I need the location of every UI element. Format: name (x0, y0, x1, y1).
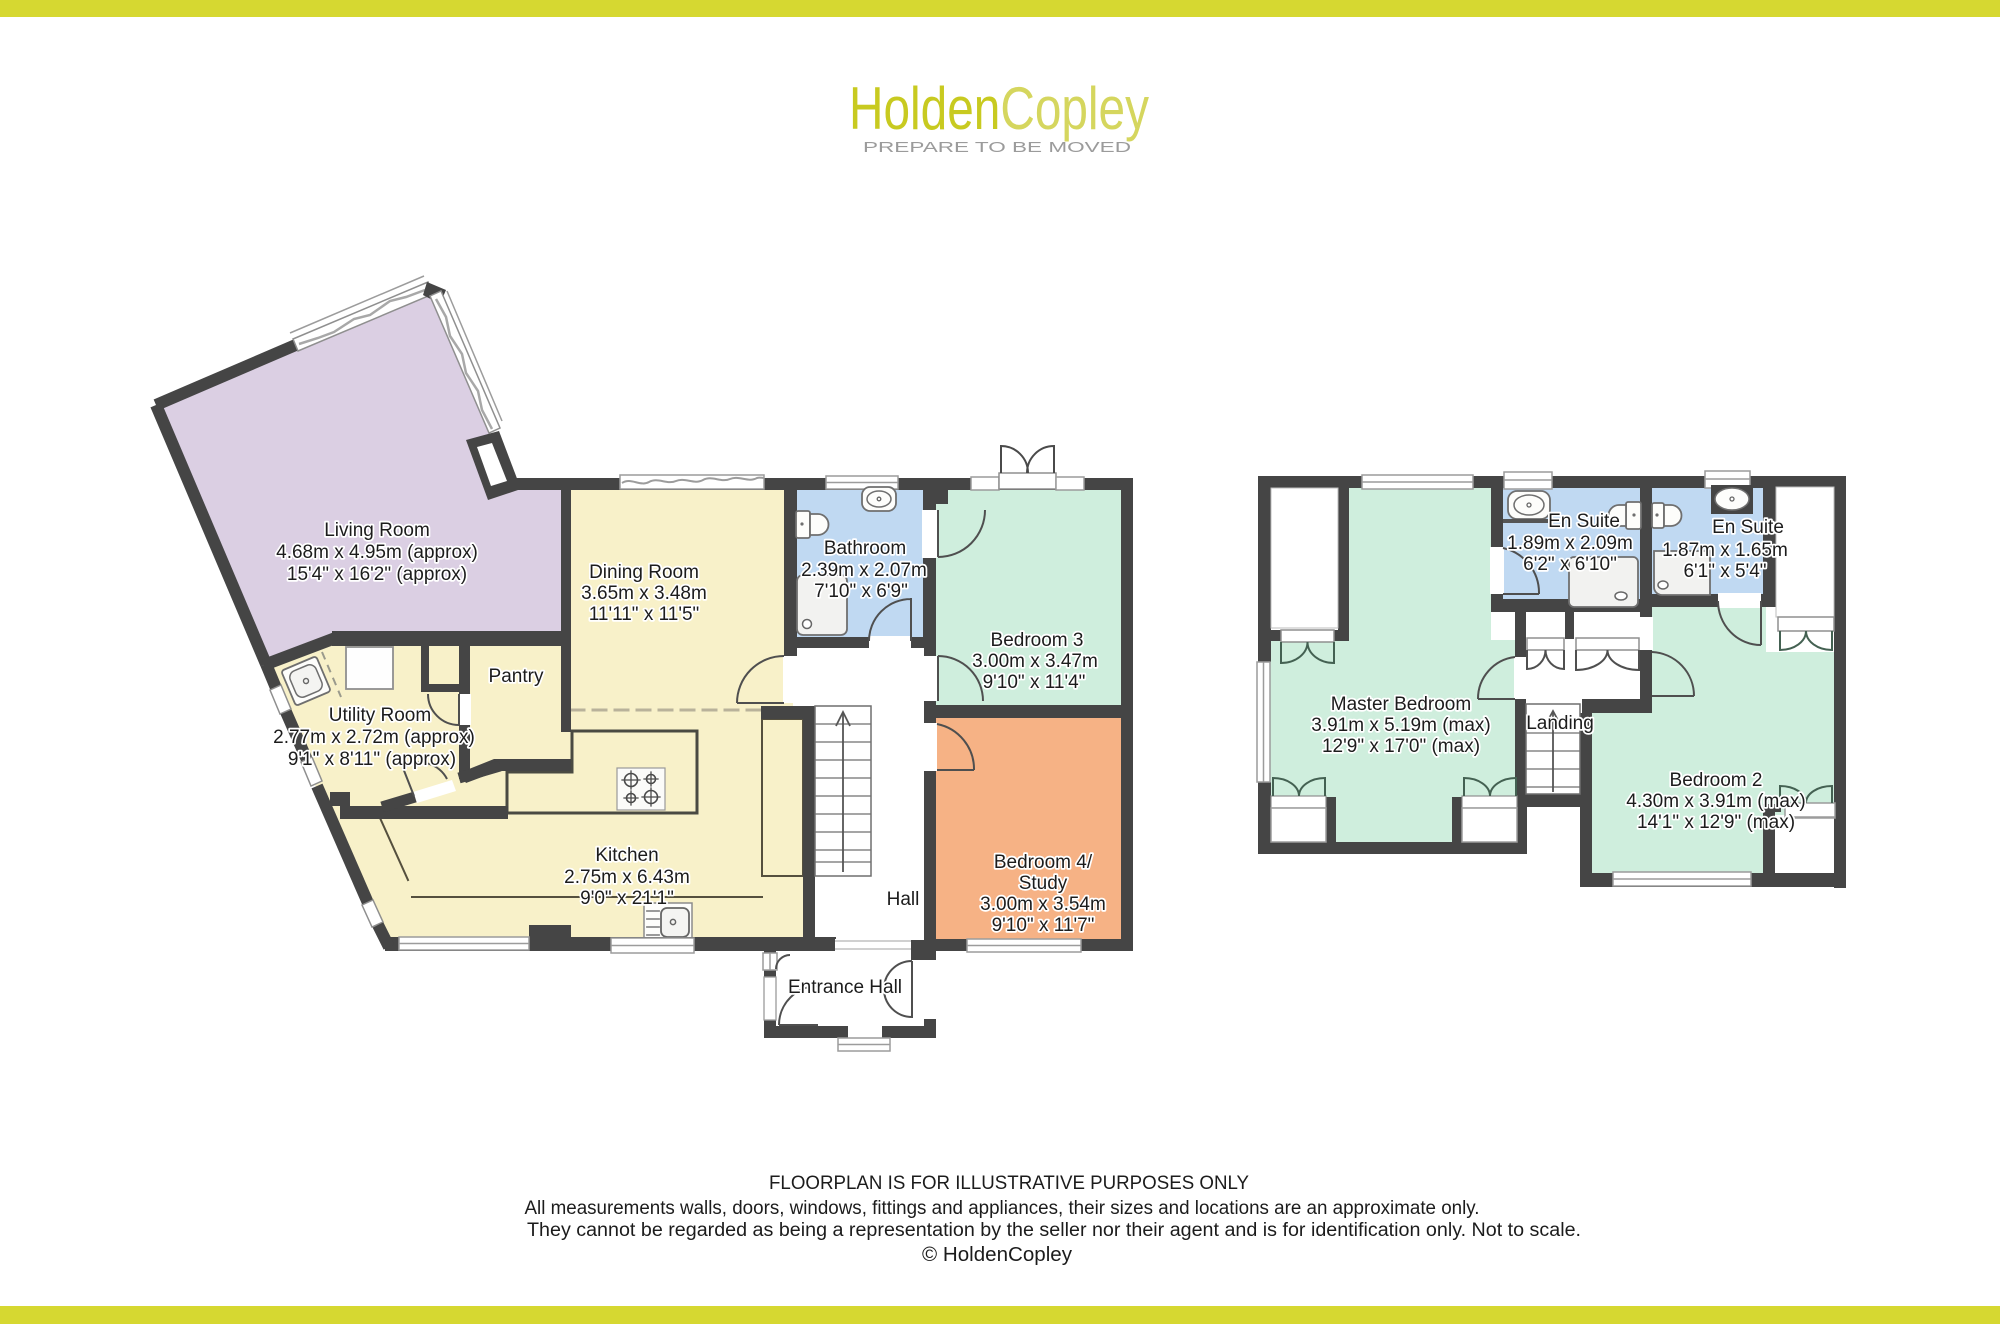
svg-text:2.77m x 2.72m (approx): 2.77m x 2.72m (approx) (273, 727, 475, 748)
svg-text:Hall: Hall (887, 889, 920, 910)
svg-text:Landing: Landing (1526, 713, 1594, 734)
svg-text:Utility Room: Utility Room (329, 705, 431, 726)
svg-text:© HoldenCopley: © HoldenCopley (922, 1244, 1072, 1266)
svg-text:Bedroom 2: Bedroom 2 (1670, 770, 1763, 791)
svg-text:Dining Room: Dining Room (589, 562, 699, 583)
svg-text:FLOORPLAN IS FOR ILLUSTRATIVE: FLOORPLAN IS FOR ILLUSTRATIVE PURPOSES O… (769, 1172, 1249, 1194)
svg-text:En Suite: En Suite (1548, 511, 1620, 532)
svg-text:Pantry: Pantry (489, 666, 544, 687)
svg-text:3.91m x 5.19m (max): 3.91m x 5.19m (max) (1311, 715, 1491, 736)
svg-text:14'1" x 12'9" (max): 14'1" x 12'9" (max) (1637, 812, 1795, 833)
svg-text:3.00m x 3.54m: 3.00m x 3.54m (980, 894, 1106, 915)
svg-text:4.30m x 3.91m (max): 4.30m x 3.91m (max) (1626, 791, 1806, 812)
svg-text:They cannot be regarded as bei: They cannot be regarded as being a repre… (527, 1220, 1581, 1241)
svg-text:15'4" x 16'2" (approx): 15'4" x 16'2" (approx) (287, 564, 467, 585)
svg-text:All measurements walls, doors,: All measurements walls, doors, windows, … (525, 1198, 1480, 1219)
svg-text:Study: Study (1019, 873, 1068, 894)
svg-text:Bathroom: Bathroom (824, 538, 906, 559)
svg-text:3.00m x 3.47m: 3.00m x 3.47m (972, 651, 1098, 672)
svg-text:6'1" x 5'4": 6'1" x 5'4" (1683, 561, 1766, 582)
svg-text:1.87m x 1.65m: 1.87m x 1.65m (1662, 540, 1788, 561)
svg-text:9'10" x 11'4": 9'10" x 11'4" (983, 672, 1086, 693)
svg-text:7'10" x 6'9": 7'10" x 6'9" (814, 581, 908, 602)
svg-text:Master Bedroom: Master Bedroom (1331, 694, 1471, 715)
svg-text:Entrance Hall: Entrance Hall (788, 977, 902, 998)
svg-text:9'0" x 21'1": 9'0" x 21'1" (580, 888, 674, 909)
svg-text:1.89m x 2.09m: 1.89m x 2.09m (1507, 533, 1633, 554)
svg-text:2.39m x 2.07m: 2.39m x 2.07m (801, 560, 927, 581)
svg-text:Living Room: Living Room (324, 520, 430, 541)
svg-text:12'9" x 17'0" (max): 12'9" x 17'0" (max) (1322, 736, 1480, 757)
svg-text:11'11" x 11'5": 11'11" x 11'5" (589, 604, 700, 625)
svg-text:Bedroom 3: Bedroom 3 (991, 630, 1084, 651)
svg-text:Bedroom 4/: Bedroom 4/ (994, 852, 1093, 873)
svg-text:4.68m x 4.95m (approx): 4.68m x 4.95m (approx) (276, 542, 478, 563)
svg-text:2.75m x 6.43m: 2.75m x 6.43m (564, 867, 690, 888)
svg-text:PREPARE TO BE MOVED: PREPARE TO BE MOVED (863, 139, 1131, 156)
svg-text:6'2" x 6'10": 6'2" x 6'10" (1523, 554, 1617, 575)
svg-text:3.65m x 3.48m: 3.65m x 3.48m (581, 583, 707, 604)
svg-text:9'1" x 8'11" (approx): 9'1" x 8'11" (approx) (288, 749, 456, 770)
svg-text:HoldenCopley: HoldenCopley (849, 75, 1149, 142)
svg-text:En Suite: En Suite (1712, 517, 1784, 538)
svg-text:9'10" x 11'7": 9'10" x 11'7" (992, 915, 1095, 936)
svg-text:Kitchen: Kitchen (595, 845, 658, 866)
